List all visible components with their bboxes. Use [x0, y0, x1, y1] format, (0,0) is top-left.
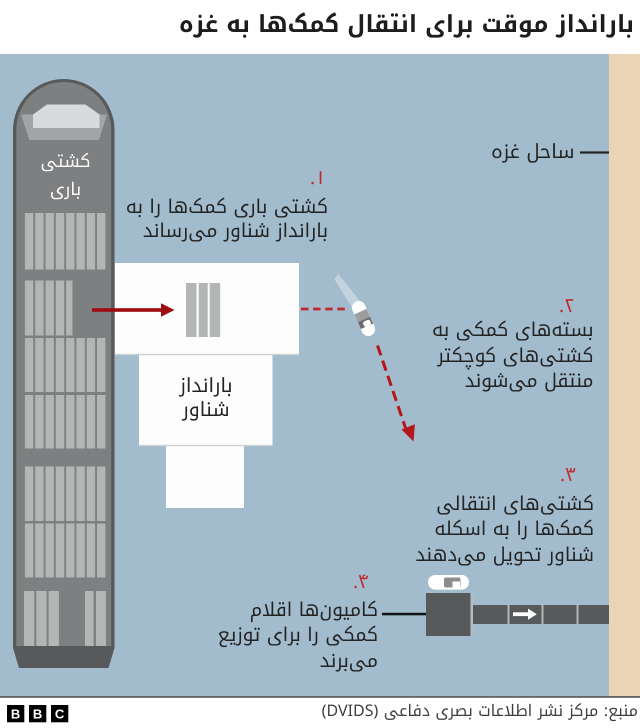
svg-text:B: B — [33, 707, 42, 722]
svg-text:B: B — [11, 707, 20, 722]
svg-text:C: C — [55, 707, 65, 722]
